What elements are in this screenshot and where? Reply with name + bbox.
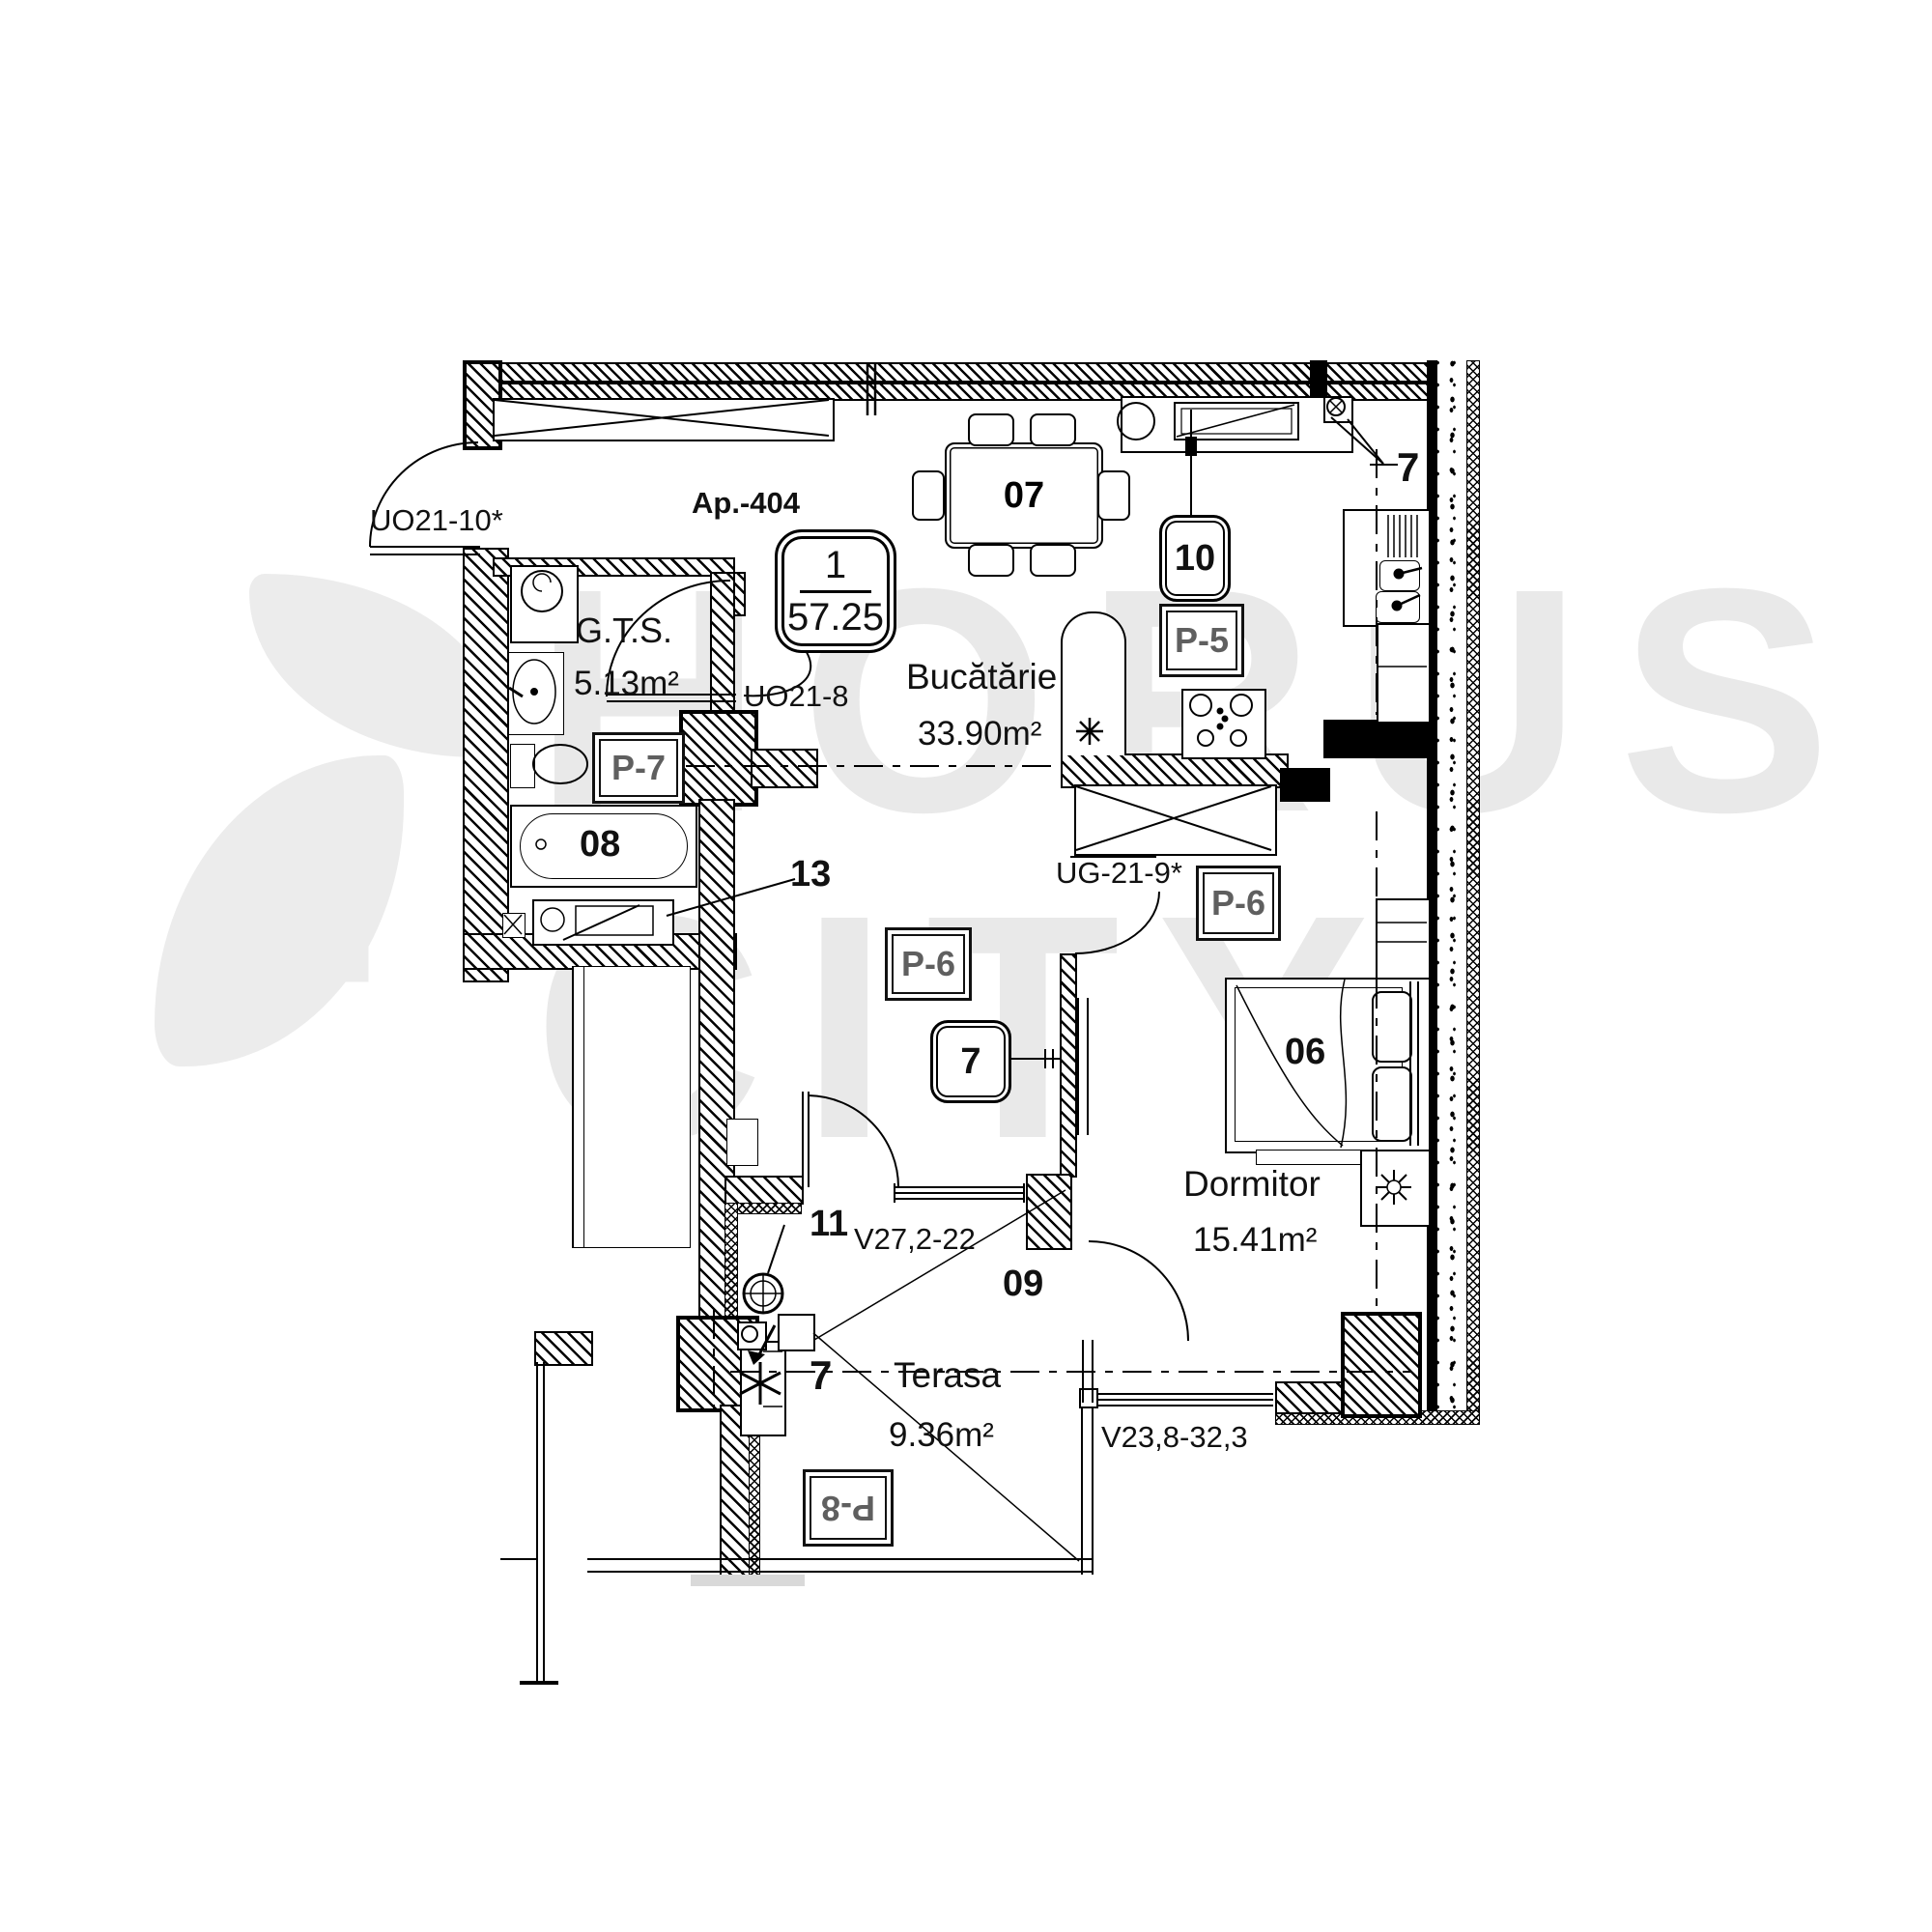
terrace-step-tab [691,1575,805,1586]
finish-label-bedroom: P-6 [1196,866,1281,941]
badge-divider [800,590,871,593]
kitchen-badge-text: 10 [1175,538,1215,580]
wall-top-exterior-outer [491,362,1431,383]
finish-label-kitchen-text: P-5 [1175,620,1229,661]
logo-petal-bottom [155,755,404,1066]
pillow-2 [1372,1066,1412,1142]
kitchen-right-counter [1377,623,1431,724]
nightstand [1376,898,1431,980]
sink-bowl-2 [1376,591,1420,623]
entry-shaft-box [493,398,835,441]
terrace-door-number: 09 [1003,1264,1043,1305]
wall-right-insulation-core [1437,360,1466,1410]
finish-label-bedroom-text: P-6 [1211,883,1265,923]
hall-wardrobe [572,966,691,1248]
pillow-1 [1372,991,1412,1063]
insul-nib-down [724,1203,738,1318]
kitchen-area: 33.90m² [918,715,1041,753]
bed-number: 06 [1285,1032,1325,1073]
terrace-name: Terasa [894,1355,1001,1396]
finish-label-bathroom: P-7 [592,732,685,804]
bathroom-door-code: UO21-8 [744,679,849,714]
bed-bench [1256,1150,1374,1165]
insul-nib-bottom [732,1203,802,1214]
badge-room-count: 1 [825,544,846,587]
chair-3 [968,544,1014,577]
bedroom-door-code: UG-21-9* [1056,856,1182,891]
terrace-outlet-box [737,1321,767,1350]
kitchen-window-number: 7 [1397,444,1419,491]
apartment-title: Ap.-404 [692,486,800,521]
wall-post-top-window [1310,360,1327,399]
bathroom-area: 5.13m² [574,665,679,703]
wall-bedroom-column [1341,1312,1422,1418]
kitchen-corner-unit [1323,396,1353,423]
living-badge: 7 [930,1020,1011,1103]
terrace-area: 9.36m² [889,1416,994,1455]
terrace-item-number: 11 [810,1204,848,1245]
wall-bedroom-door-jamb [1060,953,1077,1178]
finish-label-terrace-text: P-8 [821,1488,875,1528]
wall-living-window-jamb [1026,1174,1072,1250]
finish-label-terrace: P-8 [803,1469,894,1547]
badge-total-area: 57.25 [787,596,884,639]
sink-bowl-1 [1379,560,1420,591]
dining-table: 07 [945,442,1103,549]
plant-stand [1360,1150,1431,1227]
chair-6 [912,470,945,521]
finish-label-kitchen: P-5 [1159,604,1244,677]
finish-label-living-text: P-6 [901,944,955,984]
finish-label-living: P-6 [885,927,972,1001]
wall-hall-terrace-nib [724,1176,804,1205]
floorplan-page: { "title": { "apartment": "Ap.-404" }, "… [0,0,1932,1932]
bedroom-area: 15.41m² [1193,1221,1317,1260]
wall-neighbor-corner [534,1331,593,1366]
dining-table-number: 07 [1004,475,1044,517]
terrace-ac-number: 7 [810,1352,832,1399]
wall-kitchen-nib [751,749,818,788]
chair-1 [968,413,1014,446]
chair-2 [1030,413,1076,446]
finish-label-bathroom-text: P-7 [611,748,666,788]
washing-machine [510,565,579,643]
wall-right-insulation-strip [1466,360,1480,1425]
stove [1181,689,1266,759]
kitchen-badge: 10 [1159,515,1231,602]
entrance-door-code: UO21-10* [370,503,503,538]
toilet-tank [510,744,535,788]
bedroom-closet-box [1074,784,1277,856]
wall-kitchen-bedroom-corner-a [1323,720,1427,758]
living-badge-text: 7 [960,1041,980,1083]
apartment-badge: 1 57.25 [775,529,896,653]
wall-bath-hall-upper [710,572,735,714]
bathtub-number: 08 [580,824,620,866]
bath-counter-washer [532,899,674,946]
kitchen-top-counter [1121,396,1353,453]
bedroom-terrace-window-code: V23,8-32,3 [1101,1420,1248,1455]
kitchen-name: Bucătărie [906,657,1057,697]
chair-4 [1030,544,1076,577]
hall-item-number: 13 [790,854,831,895]
terrace-ac-unit [740,1341,786,1436]
boiler-arch [1061,611,1126,755]
wall-kitchen-bedroom-corner-b [1280,768,1330,802]
terrace-scupper-box [778,1314,815,1351]
wall-junction-post [679,710,758,807]
bathroom-name: G.T.S. [576,611,672,651]
chair-5 [1097,470,1130,521]
hall-floor-drain-box [726,1119,758,1166]
bath-sink-counter [508,652,564,735]
bedroom-name: Dormitor [1183,1164,1321,1205]
living-terrace-window-code: V27,2-22 [854,1222,976,1257]
bath-corner-box [502,913,526,938]
wall-bedroom-bottom [1275,1381,1345,1414]
